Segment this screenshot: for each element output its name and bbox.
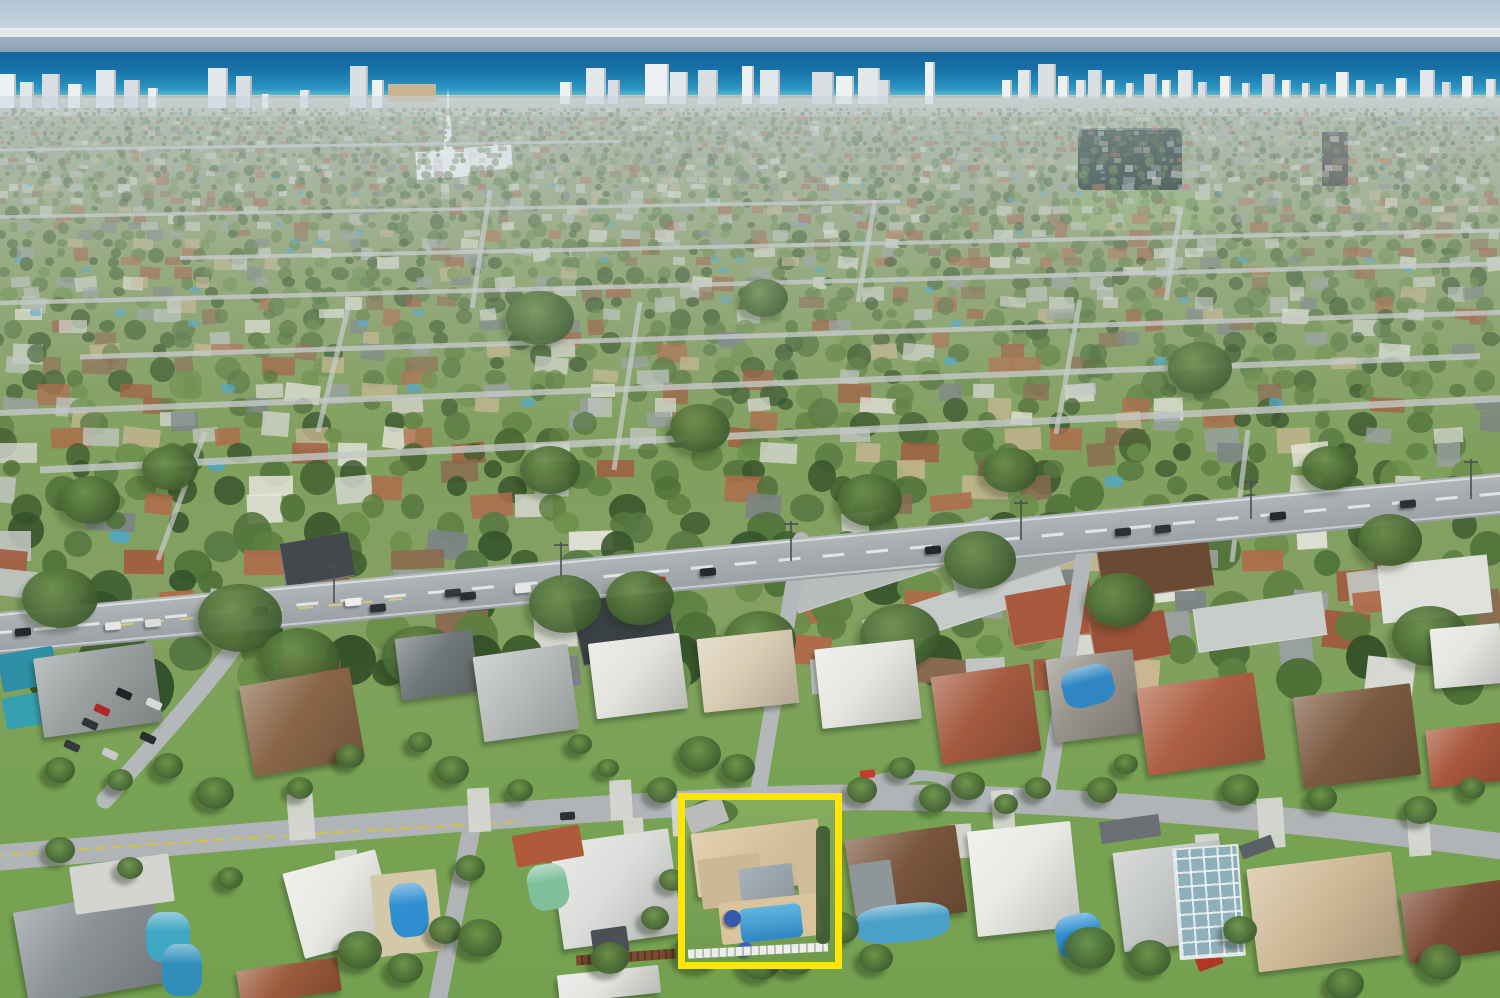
texture-house xyxy=(174,356,194,374)
texture-house xyxy=(145,164,153,172)
texture-house xyxy=(1100,171,1105,175)
texture-tree xyxy=(1317,427,1345,457)
texture-tree xyxy=(1002,121,1005,124)
texture-house xyxy=(622,126,630,130)
texture-house xyxy=(1064,634,1110,669)
texture-tree xyxy=(575,141,580,145)
texture-house xyxy=(279,141,289,145)
texture-tree xyxy=(146,121,151,126)
texture-tree xyxy=(7,239,18,249)
texture-house xyxy=(893,126,900,131)
mid-street-horizontal xyxy=(0,264,1500,303)
texture-tree xyxy=(1263,331,1278,344)
texture-tree xyxy=(919,213,931,222)
texture-house xyxy=(718,141,725,145)
texture-house xyxy=(593,369,619,383)
texture-tree xyxy=(136,297,151,308)
texture-tree xyxy=(1132,164,1138,169)
texture-tree xyxy=(1010,319,1027,336)
texture-tree xyxy=(1365,152,1372,158)
texture-house xyxy=(827,141,837,147)
texture-house xyxy=(1288,136,1293,140)
texture-tree xyxy=(235,108,239,112)
coast-tower xyxy=(1058,76,1069,98)
texture-house xyxy=(1070,147,1078,152)
texture-house xyxy=(761,121,764,123)
texture-tree xyxy=(491,126,496,130)
texture-house xyxy=(434,171,444,179)
texture-tree xyxy=(1495,131,1500,136)
texture-house xyxy=(1492,117,1498,120)
texture-tree xyxy=(854,230,865,242)
texture-tree xyxy=(674,198,681,205)
texture-house xyxy=(255,276,269,287)
texture-tree xyxy=(1321,286,1338,304)
texture-tree xyxy=(222,141,226,145)
texture-house xyxy=(1450,494,1479,514)
texture-tree xyxy=(823,131,829,137)
utility-pole-crossarm xyxy=(1014,502,1028,504)
texture-tree xyxy=(484,369,506,387)
texture-house xyxy=(210,344,242,355)
texture-house xyxy=(632,108,637,111)
texture-tree xyxy=(786,136,790,140)
texture-house xyxy=(75,275,99,292)
texture-tree xyxy=(218,117,222,122)
texture-tree xyxy=(915,634,962,686)
texture-house xyxy=(679,356,699,370)
coast-tower xyxy=(1198,82,1207,98)
texture-tree xyxy=(1385,117,1389,121)
texture-house xyxy=(423,657,469,684)
texture-tree xyxy=(237,152,246,160)
texture-tree xyxy=(97,131,100,135)
texture-house xyxy=(25,112,31,116)
texture-tree xyxy=(1426,634,1458,663)
texture-tree xyxy=(446,476,467,497)
texture-tree xyxy=(506,164,515,174)
texture-tree xyxy=(83,177,94,189)
texture-tree xyxy=(958,214,971,228)
texture-tree xyxy=(837,158,844,164)
texture-tree xyxy=(917,428,939,447)
texture-tree xyxy=(1334,112,1339,116)
texture-house xyxy=(1038,205,1051,215)
texture-house xyxy=(621,239,640,249)
texture-tree xyxy=(1136,257,1146,265)
texture-tree xyxy=(382,276,393,285)
texture-tree xyxy=(372,658,404,686)
texture-house xyxy=(265,152,273,157)
texture-house xyxy=(695,116,700,119)
texture-tree xyxy=(29,121,32,124)
texture-tree xyxy=(767,131,774,138)
texture-tree xyxy=(884,369,903,384)
texture-tree xyxy=(1364,276,1379,289)
texture-house xyxy=(380,230,393,237)
tan-hotel-building xyxy=(388,84,436,102)
texture-tree xyxy=(832,529,861,560)
texture-house xyxy=(1476,147,1482,151)
texture-house xyxy=(345,297,363,311)
texture-house xyxy=(252,164,262,170)
texture-tree xyxy=(704,108,708,112)
texture-tree xyxy=(267,184,275,192)
texture-tree xyxy=(1301,191,1310,200)
car xyxy=(460,591,477,600)
texture-house xyxy=(569,530,614,551)
texture-tree xyxy=(701,266,712,276)
texture-tree xyxy=(497,475,528,505)
texture-house xyxy=(266,112,272,115)
texture-tree xyxy=(57,222,69,234)
texture-tree xyxy=(1406,131,1413,137)
texture-tree xyxy=(842,198,855,213)
texture-house xyxy=(154,131,160,136)
texture-house xyxy=(1405,170,1415,178)
texture-tree xyxy=(350,112,355,117)
texture-tree xyxy=(750,112,754,116)
texture-tree xyxy=(455,634,502,681)
texture-tree xyxy=(350,152,357,158)
texture-tree xyxy=(164,147,170,153)
horizon-haze-band xyxy=(0,37,1500,53)
texture-tree xyxy=(666,331,687,348)
texture-house xyxy=(1123,108,1129,111)
texture-tree xyxy=(1175,428,1194,443)
texture-house xyxy=(244,191,255,198)
texture-tree xyxy=(355,164,361,170)
texture-tree xyxy=(846,141,853,148)
texture-house xyxy=(101,141,109,145)
texture-tree xyxy=(1266,126,1272,131)
texture-house xyxy=(191,198,206,207)
texture-tree xyxy=(1235,222,1243,230)
mid-street-horizontal xyxy=(0,201,900,217)
texture-tree xyxy=(1156,121,1161,126)
texture-house xyxy=(590,117,597,122)
texture-house xyxy=(1377,221,1389,228)
texture-tree xyxy=(186,141,193,147)
texture-house xyxy=(1306,126,1313,129)
texture-tree xyxy=(1298,121,1303,126)
texture-house xyxy=(56,213,73,221)
texture-tree xyxy=(1126,117,1129,120)
texture-tree xyxy=(1314,397,1332,415)
texture-house xyxy=(749,184,759,190)
texture-tree xyxy=(1094,112,1099,116)
texture-tree xyxy=(1145,308,1163,323)
texture-tree xyxy=(1394,171,1404,180)
texture-tree xyxy=(595,184,602,191)
texture-tree xyxy=(968,121,974,128)
texture-tree xyxy=(1394,108,1399,113)
texture-tree xyxy=(119,158,128,166)
texture-house xyxy=(797,213,811,223)
texture-house xyxy=(433,164,443,169)
texture-house xyxy=(397,131,402,135)
texture-tree xyxy=(823,158,829,164)
texture-tree xyxy=(514,147,521,152)
texture-tree xyxy=(1193,384,1212,402)
texture-house xyxy=(1328,131,1336,135)
texture-tree xyxy=(645,117,649,120)
texture-house xyxy=(882,247,898,260)
texture-house xyxy=(139,266,160,280)
texture-house xyxy=(1278,126,1284,131)
texture-house xyxy=(1108,247,1127,259)
texture-house xyxy=(1217,320,1241,336)
texture-house xyxy=(962,476,1009,501)
texture-tree xyxy=(1160,343,1181,362)
texture-tree xyxy=(699,136,704,140)
texture-tree xyxy=(4,320,23,340)
texture-house xyxy=(1156,267,1172,277)
texture-tree xyxy=(1413,398,1434,417)
texture-house xyxy=(735,112,741,115)
texture-tree xyxy=(1406,411,1434,435)
subject-lawn xyxy=(682,798,838,964)
texture-tree xyxy=(741,356,766,378)
texture-tree xyxy=(128,131,134,137)
texture-tree xyxy=(1200,397,1231,423)
texture-tree xyxy=(269,158,277,165)
texture-house xyxy=(762,141,766,144)
texture-house xyxy=(400,117,405,120)
texture-tree xyxy=(352,158,359,164)
driveway xyxy=(1256,797,1285,849)
texture-tree xyxy=(203,117,207,120)
texture-house xyxy=(1301,247,1315,256)
arterial-turn-lane-markings xyxy=(120,596,419,626)
parked-car xyxy=(93,703,111,717)
texture-tree xyxy=(538,131,544,137)
texture-tree xyxy=(355,108,360,113)
texture-house xyxy=(751,152,762,158)
texture-tree xyxy=(521,121,527,126)
parked-car xyxy=(115,687,133,701)
texture-house xyxy=(148,126,153,130)
texture-house xyxy=(767,205,782,215)
texture-tree xyxy=(8,221,18,231)
midground-texture xyxy=(0,0,1500,998)
texture-tree xyxy=(593,112,598,116)
texture-tree xyxy=(961,427,994,454)
teal-canopy xyxy=(2,690,57,730)
texture-tree xyxy=(76,126,81,130)
texture-tree xyxy=(21,126,25,130)
swimming-pool xyxy=(387,881,430,939)
texture-house xyxy=(503,126,511,130)
texture-tree xyxy=(310,287,327,304)
texture-tree xyxy=(608,131,614,136)
texture-house xyxy=(369,184,380,191)
texture-house xyxy=(771,632,832,666)
texture-tree xyxy=(487,136,494,142)
texture-house xyxy=(214,257,232,270)
texture-tree xyxy=(707,171,716,178)
texture-tree xyxy=(7,141,11,145)
texture-tree xyxy=(1367,147,1373,153)
texture-house xyxy=(487,152,497,157)
texture-tree xyxy=(498,121,503,126)
texture-tree xyxy=(662,588,710,629)
texture-tree xyxy=(1328,276,1340,287)
texture-house xyxy=(464,126,471,130)
texture-house xyxy=(162,171,169,177)
texture-house xyxy=(903,589,942,626)
coast-tower xyxy=(925,62,935,104)
texture-tree xyxy=(930,112,935,117)
texture-tree xyxy=(779,126,783,129)
texture-house xyxy=(586,121,594,126)
texture-tree xyxy=(1174,286,1189,298)
texture-house xyxy=(2,396,38,412)
texture-tree xyxy=(10,131,14,135)
texture-tree xyxy=(477,529,514,563)
texture-tree xyxy=(73,108,76,111)
texture-tree xyxy=(385,177,395,185)
texture-house xyxy=(937,126,943,131)
texture-tree xyxy=(780,427,798,442)
texture-tree xyxy=(759,121,763,124)
texture-house xyxy=(1380,198,1395,207)
texture-tree xyxy=(768,152,776,159)
texture-house xyxy=(804,177,817,183)
texture-tree xyxy=(71,459,91,479)
texture-tree xyxy=(589,126,596,133)
texture-house xyxy=(1343,247,1358,257)
texture-tree xyxy=(1089,256,1107,276)
texture-tree xyxy=(804,108,809,113)
texture-tree xyxy=(1343,152,1351,160)
texture-house xyxy=(291,131,296,134)
texture-tree xyxy=(462,112,466,117)
texture-tree xyxy=(1257,108,1262,114)
texture-tree xyxy=(478,136,483,142)
texture-tree xyxy=(31,171,37,178)
texture-tree xyxy=(136,230,145,239)
texture-house xyxy=(587,320,604,336)
texture-house xyxy=(1096,164,1103,170)
texture-house xyxy=(854,121,860,125)
texture-tree xyxy=(11,112,15,116)
texture-house xyxy=(778,171,787,179)
texture-house xyxy=(1066,164,1077,170)
texture-tree xyxy=(1309,191,1316,198)
midground-building xyxy=(1377,554,1492,623)
texture-tree xyxy=(1253,126,1258,130)
texture-house xyxy=(118,184,131,194)
texture-house xyxy=(1128,230,1141,238)
texture-tree xyxy=(320,198,329,207)
texture-house xyxy=(335,475,374,506)
texture-house xyxy=(264,256,286,272)
texture-tree xyxy=(1026,112,1030,115)
subject-roof-right xyxy=(793,838,830,897)
driveway xyxy=(467,787,491,832)
texture-tree xyxy=(244,164,254,175)
texture-tree xyxy=(1068,184,1078,193)
texture-house xyxy=(1076,191,1082,195)
texture-tree xyxy=(1398,276,1418,294)
texture-tree xyxy=(209,214,216,222)
texture-tree xyxy=(1396,297,1418,314)
texture-house xyxy=(1104,426,1145,447)
texture-tree xyxy=(566,117,571,122)
texture-tree xyxy=(1315,108,1320,113)
texture-tree xyxy=(100,117,105,122)
texture-tree xyxy=(1381,121,1387,128)
texture-house xyxy=(242,116,248,120)
texture-tree xyxy=(1261,286,1272,296)
house-structure xyxy=(69,853,175,914)
car xyxy=(145,618,162,627)
texture-tree xyxy=(1460,108,1463,111)
texture-house xyxy=(632,126,639,131)
texture-house xyxy=(975,131,982,136)
texture-tree xyxy=(0,230,6,239)
texture-house xyxy=(380,112,385,115)
tree-canopy xyxy=(520,446,580,494)
texture-house xyxy=(640,136,648,141)
texture-tree xyxy=(220,126,224,130)
texture-house xyxy=(1456,177,1468,185)
texture-tree xyxy=(106,511,127,529)
house-roof xyxy=(1400,879,1500,964)
texture-tree xyxy=(73,121,77,124)
texture-tree xyxy=(330,152,338,160)
texture-house xyxy=(802,117,808,121)
house-roof xyxy=(1136,672,1265,776)
texture-tree xyxy=(479,213,492,225)
texture-house xyxy=(747,397,770,413)
texture-tree xyxy=(989,191,1001,202)
texture-tree xyxy=(236,206,246,216)
texture-tree xyxy=(1443,247,1458,262)
texture-tree xyxy=(1272,370,1297,390)
texture-tree xyxy=(1268,117,1274,122)
texture-tree xyxy=(743,117,746,120)
texture-tree xyxy=(71,384,88,402)
texture-house xyxy=(759,442,797,464)
texture-tree xyxy=(1240,356,1263,380)
texture-tree xyxy=(337,117,341,120)
texture-tree xyxy=(1475,158,1482,166)
texture-tree xyxy=(199,238,211,249)
texture-tree xyxy=(1162,108,1167,113)
patio-umbrella xyxy=(738,942,753,957)
texture-tree xyxy=(1432,320,1445,330)
texture-tree xyxy=(1028,116,1034,122)
texture-tree xyxy=(26,146,35,155)
texture-house xyxy=(1365,655,1416,697)
texture-tree xyxy=(822,276,832,286)
texture-tree xyxy=(1308,136,1313,141)
texture-house xyxy=(742,370,774,390)
texture-tree xyxy=(183,152,192,161)
house-structure xyxy=(512,824,585,867)
texture-house xyxy=(1137,247,1153,260)
texture-tree xyxy=(862,112,865,115)
texture-house xyxy=(366,297,383,310)
texture-tree xyxy=(1325,221,1336,232)
texture-tree xyxy=(1034,343,1062,367)
texture-house xyxy=(1200,164,1213,171)
texture-house xyxy=(1196,158,1205,163)
texture-tree xyxy=(322,177,330,184)
texture-tree xyxy=(1134,511,1174,546)
